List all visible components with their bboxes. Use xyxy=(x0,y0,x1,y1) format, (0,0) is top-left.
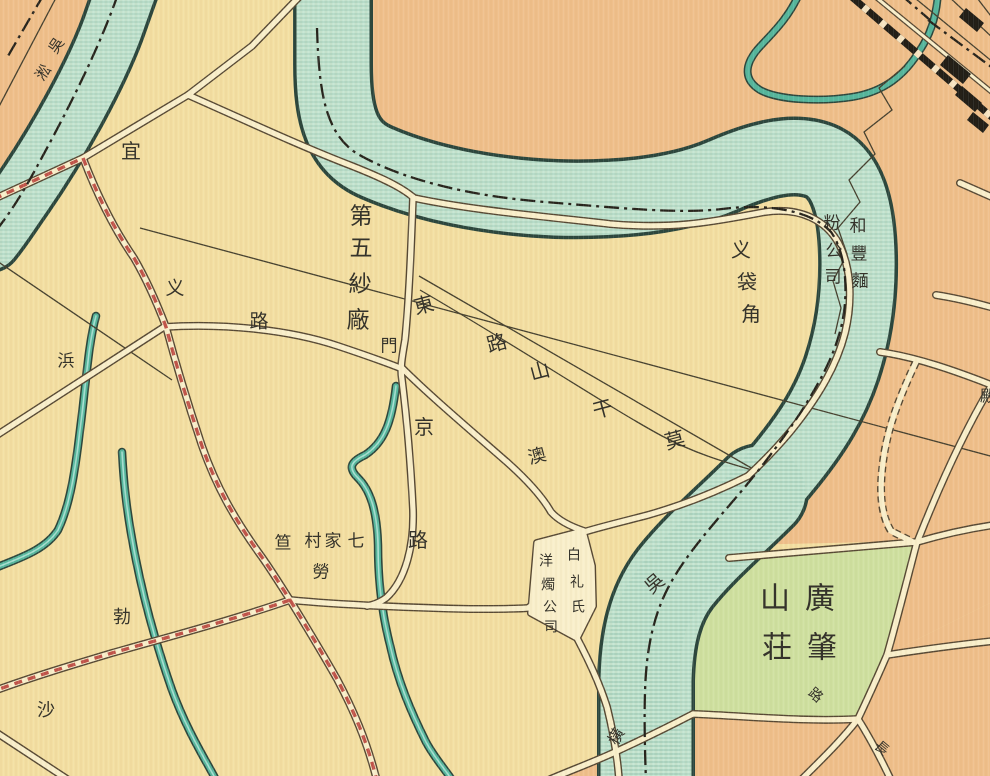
label-gate: 門 xyxy=(381,337,398,356)
label-price-candle-right-char: 氏 xyxy=(571,600,585,616)
label-guangzhao-cemetery-char: 山 xyxy=(760,583,790,616)
label-jing-road-char: 路 xyxy=(408,529,428,552)
paper-texture xyxy=(0,0,990,776)
label-price-candle-right-char: 白 xyxy=(567,548,581,564)
label-no5-cotton-mill-char: 五 xyxy=(350,236,373,261)
label-no5-cotton-mill-char: 廠 xyxy=(347,308,370,333)
label-yichang-road-char: 宜 xyxy=(121,140,141,163)
label-robison-road-bo-char: 勃 xyxy=(113,607,131,627)
label-robison-road-bo: 勃 xyxy=(113,607,131,627)
map-canvas: 宜吳淞第五紗廠門東路山干莫义路浜京路澳义袋角和豐麵粉公司吳白礼氏洋燭公司七家村笪… xyxy=(0,0,990,776)
label-hefeng-flour-mill-left: 粉公司 xyxy=(824,214,843,287)
label-hefeng-flour-mill-right: 和豐麵 xyxy=(850,217,869,291)
label-price-candle-left-char: 公 xyxy=(543,601,557,616)
label-gate-char: 門 xyxy=(381,337,398,356)
label-hefeng-flour-mill-right-char: 麵 xyxy=(852,272,869,291)
label-edge-partial: 殿 xyxy=(980,388,990,406)
label-jing-road-char: 京 xyxy=(414,416,434,439)
label-no5-cotton-mill-char: 第 xyxy=(350,204,373,229)
label-guangzhao-cemetery-char: 肇 xyxy=(807,632,837,665)
label-qijiacun-village-char: 村 xyxy=(305,532,322,551)
label-guangzhao-cemetery-char: 荘 xyxy=(762,632,792,665)
label-yi-road-west-char: 路 xyxy=(249,311,268,333)
label-qijiacun-village-char: 七 xyxy=(348,532,365,551)
label-sha: 沙 xyxy=(37,700,55,720)
label-qijiacun-village: 七家村笪 xyxy=(275,532,365,553)
historical-map: 宜吳淞第五紗廠門東路山干莫义路浜京路澳义袋角和豐麵粉公司吳白礼氏洋燭公司七家村笪… xyxy=(0,0,990,776)
label-yichang-road: 宜 xyxy=(121,140,141,163)
label-guangzhao-cemetery-char: 廣 xyxy=(805,583,835,616)
label-price-candle-right-char: 礼 xyxy=(570,575,584,591)
label-bang-creek: 浜 xyxy=(58,352,75,371)
label-hefeng-flour-mill-left-char: 公 xyxy=(826,242,843,261)
label-robison-road-lao-char: 勞 xyxy=(313,563,330,582)
label-no5-cotton-mill-char: 紗 xyxy=(349,272,372,297)
label-yi-road-west-char: 义 xyxy=(165,278,184,300)
label-hefeng-flour-mill-left-char: 粉 xyxy=(824,214,841,233)
label-edge-partial-char: 殿 xyxy=(980,388,990,406)
label-qijiacun-village-char: 家 xyxy=(325,532,342,551)
label-yidaijiao-char: 袋 xyxy=(737,271,757,294)
label-price-candle-left-char: 司 xyxy=(544,621,558,636)
label-hefeng-flour-mill-right-char: 豐 xyxy=(851,245,868,264)
label-bang-creek-char: 浜 xyxy=(58,352,75,371)
label-yidaijiao-char: 义 xyxy=(731,239,751,262)
label-yidaijiao-char: 角 xyxy=(741,303,761,326)
label-qijiacun-village-char: 笪 xyxy=(275,534,292,553)
label-price-candle-left-char: 燭 xyxy=(541,578,555,594)
label-robison-road-lao: 勞 xyxy=(313,563,330,582)
label-sha-char: 沙 xyxy=(37,700,55,720)
label-price-candle-left-char: 洋 xyxy=(539,554,553,570)
label-hefeng-flour-mill-right-char: 和 xyxy=(850,217,867,236)
label-hefeng-flour-mill-left-char: 司 xyxy=(825,268,842,287)
